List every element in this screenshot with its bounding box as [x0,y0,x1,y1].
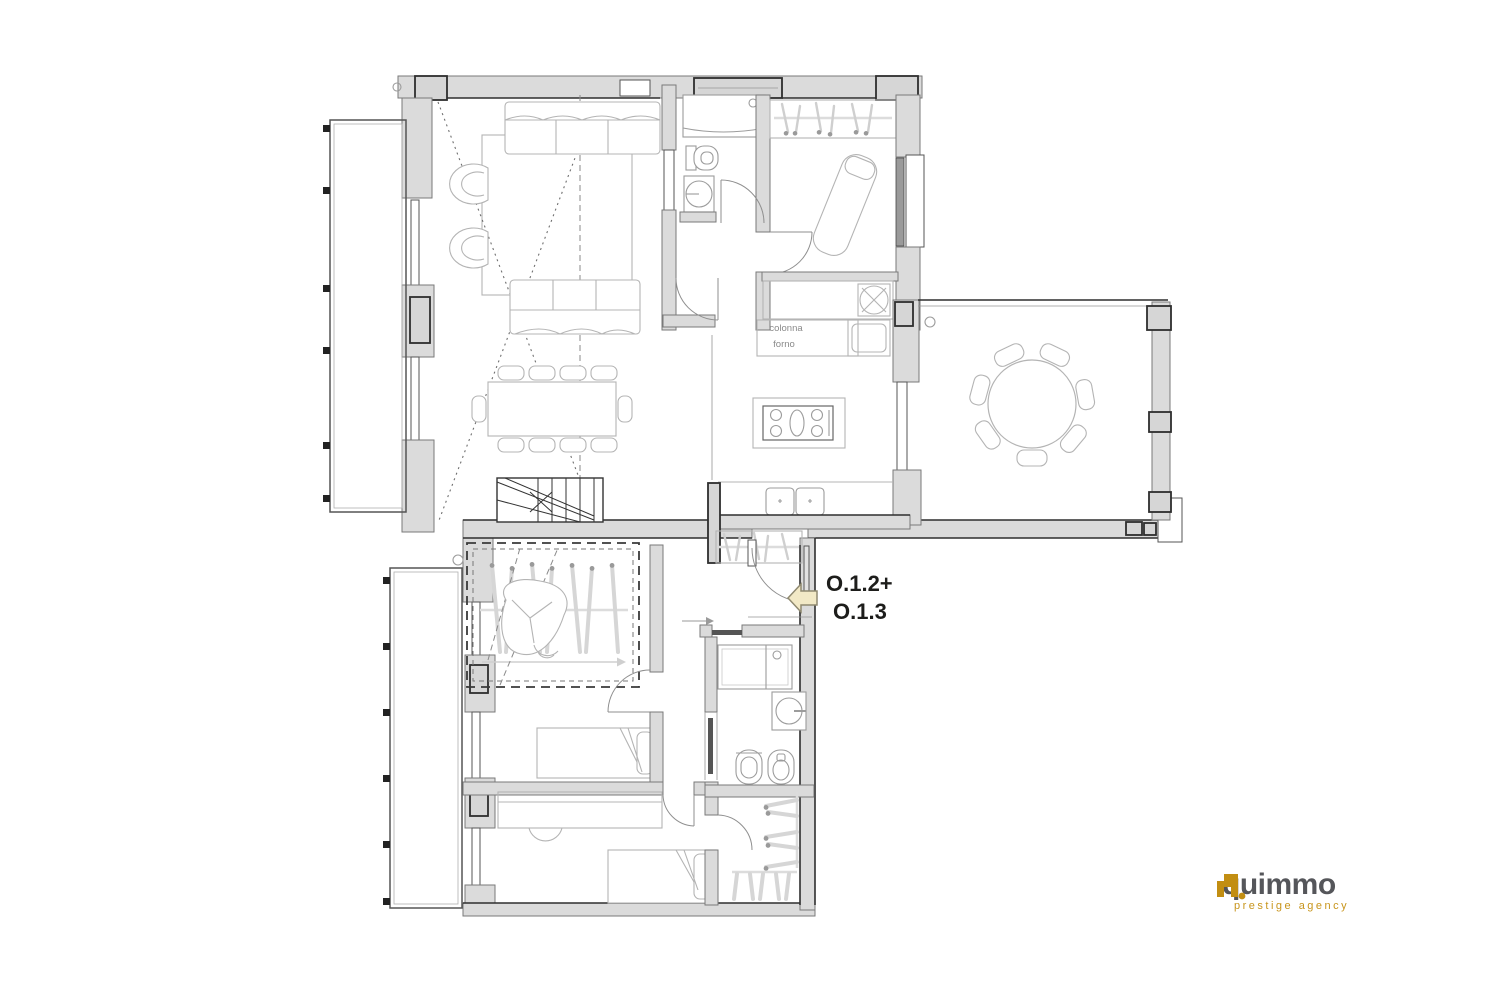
brand-tagline: prestige agency [1222,901,1349,912]
pocket-door-top [712,630,742,635]
quimmo-logo-icon [1216,870,1246,902]
bathroom-top [662,85,812,330]
toilet [686,146,718,170]
door-closet [718,815,752,850]
entrance: O.1.2+ O.1.3 [748,540,893,624]
bedroom-bottom [498,782,752,905]
bathroom-bottom [682,617,814,797]
kitchen-note-line1: colonna [769,323,803,334]
toilet [736,750,762,784]
door-corridor [676,278,718,320]
kitchen-tall-units: colonna forno [757,281,893,356]
washbasin [684,176,714,212]
staircase [497,478,603,522]
dining-table [472,366,632,452]
sofa-bottom [510,280,640,334]
balustrade-posts [323,125,330,502]
bedroom-top-right [762,95,924,330]
sofa-top [505,102,660,154]
hob [763,406,833,440]
desk [498,792,662,841]
armchair-2 [450,228,488,268]
organic-desk [502,580,567,658]
living-room [438,95,660,523]
wardrobe [770,100,896,138]
brand-watermark: quimmo prestige agency [1216,870,1349,912]
pocket-door-side [708,718,713,774]
entrance-label-line1: O.1.2+ [826,571,893,596]
round-dining-table [968,341,1095,466]
door-bedroom-middle [608,670,650,712]
chaise-longue [809,150,881,260]
balcony-bottom-left [383,568,462,908]
bidet [768,750,794,784]
bed-middle [537,728,659,778]
oven-symbol [862,288,886,312]
door-bedroom-bottom [663,795,694,826]
armchair-1 [450,164,488,204]
kitchen-note-line2: forno [773,339,795,350]
washbasin [772,692,806,730]
entrance-label-line2: O.1.3 [833,599,887,624]
bed-bottom [608,850,716,903]
floor-plan-page: colonna forno [0,0,1500,1000]
balcony-top-left [323,120,406,512]
bathtub [683,95,765,137]
kitchen-island [753,398,845,448]
floor-plan-drawing: colonna forno [0,0,1500,1000]
kitchen: colonna forno [708,281,935,563]
terrace-right [918,300,1171,520]
balustrade-posts [383,577,390,905]
rug [482,135,632,295]
shower [718,645,792,689]
desk-chair [529,828,562,841]
walk-in-closet [732,792,797,899]
door-bedroom-top [770,232,812,274]
